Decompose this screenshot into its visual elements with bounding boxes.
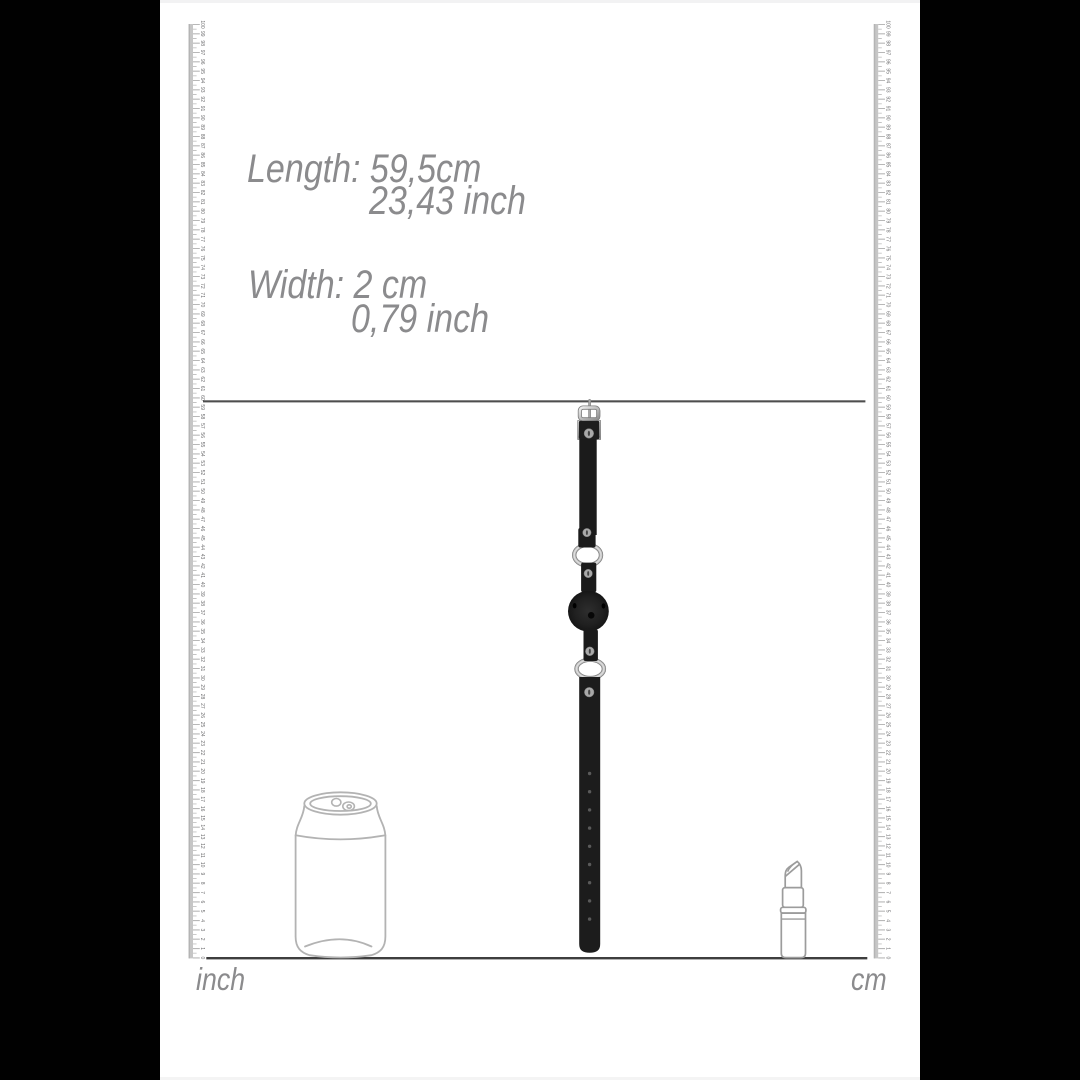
svg-text:95: 95 xyxy=(199,68,205,74)
svg-text:20: 20 xyxy=(199,768,205,774)
svg-text:53: 53 xyxy=(199,460,205,466)
svg-text:28: 28 xyxy=(884,694,890,700)
svg-text:92: 92 xyxy=(199,96,205,102)
svg-text:76: 76 xyxy=(199,246,205,252)
svg-text:1: 1 xyxy=(884,947,890,950)
svg-text:63: 63 xyxy=(884,367,890,373)
svg-text:75: 75 xyxy=(884,255,890,261)
svg-text:30: 30 xyxy=(884,675,890,681)
svg-text:90: 90 xyxy=(884,115,890,121)
svg-text:57: 57 xyxy=(884,423,890,429)
svg-text:15: 15 xyxy=(199,815,205,821)
svg-text:54: 54 xyxy=(884,451,890,457)
svg-text:46: 46 xyxy=(199,526,205,532)
svg-text:85: 85 xyxy=(884,162,890,168)
svg-text:27: 27 xyxy=(884,703,890,709)
svg-text:21: 21 xyxy=(199,759,205,765)
svg-text:4: 4 xyxy=(884,919,890,922)
svg-text:81: 81 xyxy=(884,199,890,205)
svg-text:33: 33 xyxy=(884,647,890,653)
svg-text:62: 62 xyxy=(884,376,890,382)
svg-text:90: 90 xyxy=(199,115,205,121)
svg-text:47: 47 xyxy=(199,516,205,522)
svg-text:85: 85 xyxy=(199,162,205,168)
svg-text:34: 34 xyxy=(199,638,205,644)
svg-text:10: 10 xyxy=(884,862,890,868)
svg-text:57: 57 xyxy=(199,423,205,429)
svg-text:89: 89 xyxy=(199,124,205,130)
svg-text:20: 20 xyxy=(884,768,890,774)
svg-text:48: 48 xyxy=(884,507,890,513)
svg-text:24: 24 xyxy=(199,731,205,737)
svg-text:33: 33 xyxy=(199,647,205,653)
svg-text:97: 97 xyxy=(199,50,205,56)
svg-text:4: 4 xyxy=(199,919,205,922)
svg-text:87: 87 xyxy=(199,143,205,149)
svg-text:21: 21 xyxy=(884,759,890,765)
svg-text:60: 60 xyxy=(199,395,205,401)
svg-text:51: 51 xyxy=(199,479,205,485)
svg-text:22: 22 xyxy=(199,750,205,756)
svg-text:27: 27 xyxy=(199,703,205,709)
svg-text:91: 91 xyxy=(199,106,205,112)
svg-text:61: 61 xyxy=(199,386,205,392)
svg-text:91: 91 xyxy=(884,106,890,112)
svg-text:64: 64 xyxy=(884,358,890,364)
svg-text:93: 93 xyxy=(884,87,890,93)
svg-text:100: 100 xyxy=(884,20,890,29)
svg-text:9: 9 xyxy=(884,873,890,876)
svg-text:70: 70 xyxy=(199,302,205,308)
svg-text:25: 25 xyxy=(884,722,890,728)
svg-text:18: 18 xyxy=(199,787,205,793)
svg-text:60: 60 xyxy=(884,395,890,401)
svg-text:8: 8 xyxy=(199,882,205,885)
svg-text:23: 23 xyxy=(199,740,205,746)
svg-text:32: 32 xyxy=(199,656,205,662)
svg-text:63: 63 xyxy=(199,367,205,373)
svg-text:13: 13 xyxy=(199,834,205,840)
svg-text:98: 98 xyxy=(199,40,205,46)
svg-text:55: 55 xyxy=(884,442,890,448)
svg-text:86: 86 xyxy=(199,152,205,158)
svg-text:94: 94 xyxy=(884,78,890,84)
svg-text:35: 35 xyxy=(199,628,205,634)
svg-text:78: 78 xyxy=(199,227,205,233)
svg-text:17: 17 xyxy=(884,796,890,802)
svg-text:84: 84 xyxy=(884,171,890,177)
svg-text:66: 66 xyxy=(884,339,890,345)
svg-text:22: 22 xyxy=(884,750,890,756)
svg-text:88: 88 xyxy=(884,134,890,140)
svg-text:68: 68 xyxy=(199,320,205,326)
svg-text:70: 70 xyxy=(884,302,890,308)
svg-text:58: 58 xyxy=(884,414,890,420)
svg-text:38: 38 xyxy=(884,600,890,606)
svg-text:29: 29 xyxy=(884,684,890,690)
svg-text:100: 100 xyxy=(199,20,205,29)
svg-text:92: 92 xyxy=(884,96,890,102)
svg-text:0: 0 xyxy=(199,957,205,960)
svg-text:83: 83 xyxy=(199,180,205,186)
svg-text:37: 37 xyxy=(199,610,205,616)
svg-text:94: 94 xyxy=(199,78,205,84)
svg-text:80: 80 xyxy=(199,208,205,214)
svg-text:15: 15 xyxy=(884,815,890,821)
svg-text:53: 53 xyxy=(884,460,890,466)
svg-text:25: 25 xyxy=(199,722,205,728)
svg-text:18: 18 xyxy=(884,787,890,793)
svg-text:51: 51 xyxy=(884,479,890,485)
svg-text:69: 69 xyxy=(884,311,890,317)
svg-text:35: 35 xyxy=(884,628,890,634)
svg-text:56: 56 xyxy=(884,432,890,438)
svg-text:45: 45 xyxy=(884,535,890,541)
svg-text:37: 37 xyxy=(884,610,890,616)
svg-text:59: 59 xyxy=(199,404,205,410)
svg-text:82: 82 xyxy=(884,190,890,196)
svg-text:16: 16 xyxy=(199,806,205,812)
svg-text:66: 66 xyxy=(199,339,205,345)
svg-text:13: 13 xyxy=(884,834,890,840)
svg-text:5: 5 xyxy=(199,910,205,913)
svg-text:61: 61 xyxy=(884,386,890,392)
svg-text:30: 30 xyxy=(199,675,205,681)
svg-text:16: 16 xyxy=(884,806,890,812)
svg-text:41: 41 xyxy=(199,572,205,578)
svg-text:12: 12 xyxy=(199,843,205,849)
svg-text:32: 32 xyxy=(884,656,890,662)
svg-text:93: 93 xyxy=(199,87,205,93)
svg-text:6: 6 xyxy=(884,901,890,904)
svg-text:7: 7 xyxy=(199,891,205,894)
svg-text:50: 50 xyxy=(884,488,890,494)
svg-text:75: 75 xyxy=(199,255,205,261)
svg-text:78: 78 xyxy=(884,227,890,233)
svg-text:3: 3 xyxy=(199,929,205,932)
svg-text:99: 99 xyxy=(199,31,205,37)
svg-text:87: 87 xyxy=(884,143,890,149)
svg-text:50: 50 xyxy=(199,488,205,494)
svg-text:6: 6 xyxy=(199,901,205,904)
svg-text:99: 99 xyxy=(884,31,890,37)
svg-text:82: 82 xyxy=(199,190,205,196)
svg-text:56: 56 xyxy=(199,432,205,438)
svg-text:41: 41 xyxy=(884,572,890,578)
svg-text:2: 2 xyxy=(884,938,890,941)
svg-text:36: 36 xyxy=(884,619,890,625)
svg-text:2: 2 xyxy=(199,938,205,941)
svg-text:49: 49 xyxy=(884,498,890,504)
svg-text:55: 55 xyxy=(199,442,205,448)
svg-text:68: 68 xyxy=(884,320,890,326)
svg-text:24: 24 xyxy=(884,731,890,737)
svg-text:40: 40 xyxy=(884,582,890,588)
svg-text:31: 31 xyxy=(884,666,890,672)
svg-text:97: 97 xyxy=(884,50,890,56)
svg-text:74: 74 xyxy=(199,264,205,270)
svg-text:71: 71 xyxy=(884,292,890,298)
svg-text:29: 29 xyxy=(199,684,205,690)
svg-text:11: 11 xyxy=(199,853,205,858)
svg-text:14: 14 xyxy=(884,824,890,830)
svg-text:42: 42 xyxy=(199,563,205,569)
svg-text:86: 86 xyxy=(884,152,890,158)
svg-text:47: 47 xyxy=(884,516,890,522)
svg-text:26: 26 xyxy=(199,712,205,718)
svg-text:23: 23 xyxy=(884,740,890,746)
svg-text:28: 28 xyxy=(199,694,205,700)
svg-text:0: 0 xyxy=(884,957,890,960)
svg-text:45: 45 xyxy=(199,535,205,541)
svg-text:96: 96 xyxy=(199,59,205,65)
svg-text:62: 62 xyxy=(199,376,205,382)
svg-text:84: 84 xyxy=(199,171,205,177)
svg-text:64: 64 xyxy=(199,358,205,364)
svg-text:19: 19 xyxy=(199,778,205,784)
svg-text:8: 8 xyxy=(884,882,890,885)
svg-text:1: 1 xyxy=(199,947,205,950)
svg-text:48: 48 xyxy=(199,507,205,513)
svg-text:54: 54 xyxy=(199,451,205,457)
svg-text:72: 72 xyxy=(884,283,890,289)
svg-text:14: 14 xyxy=(199,824,205,830)
svg-text:80: 80 xyxy=(884,208,890,214)
svg-text:19: 19 xyxy=(884,778,890,784)
svg-text:3: 3 xyxy=(884,929,890,932)
svg-text:74: 74 xyxy=(884,264,890,270)
svg-text:67: 67 xyxy=(199,330,205,336)
svg-text:73: 73 xyxy=(199,274,205,280)
svg-text:43: 43 xyxy=(199,554,205,560)
svg-text:10: 10 xyxy=(199,862,205,868)
svg-text:39: 39 xyxy=(199,591,205,597)
svg-text:34: 34 xyxy=(884,638,890,644)
svg-text:65: 65 xyxy=(199,348,205,354)
svg-text:88: 88 xyxy=(199,134,205,140)
svg-text:83: 83 xyxy=(884,180,890,186)
svg-text:95: 95 xyxy=(884,68,890,74)
svg-text:58: 58 xyxy=(199,414,205,420)
svg-text:17: 17 xyxy=(199,796,205,802)
svg-text:71: 71 xyxy=(199,292,205,298)
svg-text:67: 67 xyxy=(884,330,890,336)
svg-text:40: 40 xyxy=(199,582,205,588)
svg-text:52: 52 xyxy=(884,470,890,476)
svg-text:43: 43 xyxy=(884,554,890,560)
svg-text:73: 73 xyxy=(884,274,890,280)
svg-text:31: 31 xyxy=(199,666,205,672)
svg-text:69: 69 xyxy=(199,311,205,317)
svg-text:46: 46 xyxy=(884,526,890,532)
svg-text:49: 49 xyxy=(199,498,205,504)
svg-text:76: 76 xyxy=(884,246,890,252)
svg-text:77: 77 xyxy=(199,236,205,242)
svg-text:89: 89 xyxy=(884,124,890,130)
svg-text:39: 39 xyxy=(884,591,890,597)
svg-text:52: 52 xyxy=(199,470,205,476)
svg-text:81: 81 xyxy=(199,199,205,205)
svg-text:72: 72 xyxy=(199,283,205,289)
svg-text:65: 65 xyxy=(884,348,890,354)
svg-text:44: 44 xyxy=(884,544,890,550)
svg-text:44: 44 xyxy=(199,544,205,550)
svg-text:11: 11 xyxy=(884,853,890,858)
svg-text:26: 26 xyxy=(884,712,890,718)
svg-text:98: 98 xyxy=(884,40,890,46)
svg-text:79: 79 xyxy=(199,218,205,224)
svg-text:7: 7 xyxy=(884,891,890,894)
svg-text:9: 9 xyxy=(199,873,205,876)
svg-text:42: 42 xyxy=(884,563,890,569)
svg-text:5: 5 xyxy=(884,910,890,913)
svg-text:12: 12 xyxy=(884,843,890,849)
svg-text:36: 36 xyxy=(199,619,205,625)
svg-text:77: 77 xyxy=(884,236,890,242)
svg-text:38: 38 xyxy=(199,600,205,606)
svg-text:59: 59 xyxy=(884,404,890,410)
svg-text:79: 79 xyxy=(884,218,890,224)
svg-text:96: 96 xyxy=(884,59,890,65)
